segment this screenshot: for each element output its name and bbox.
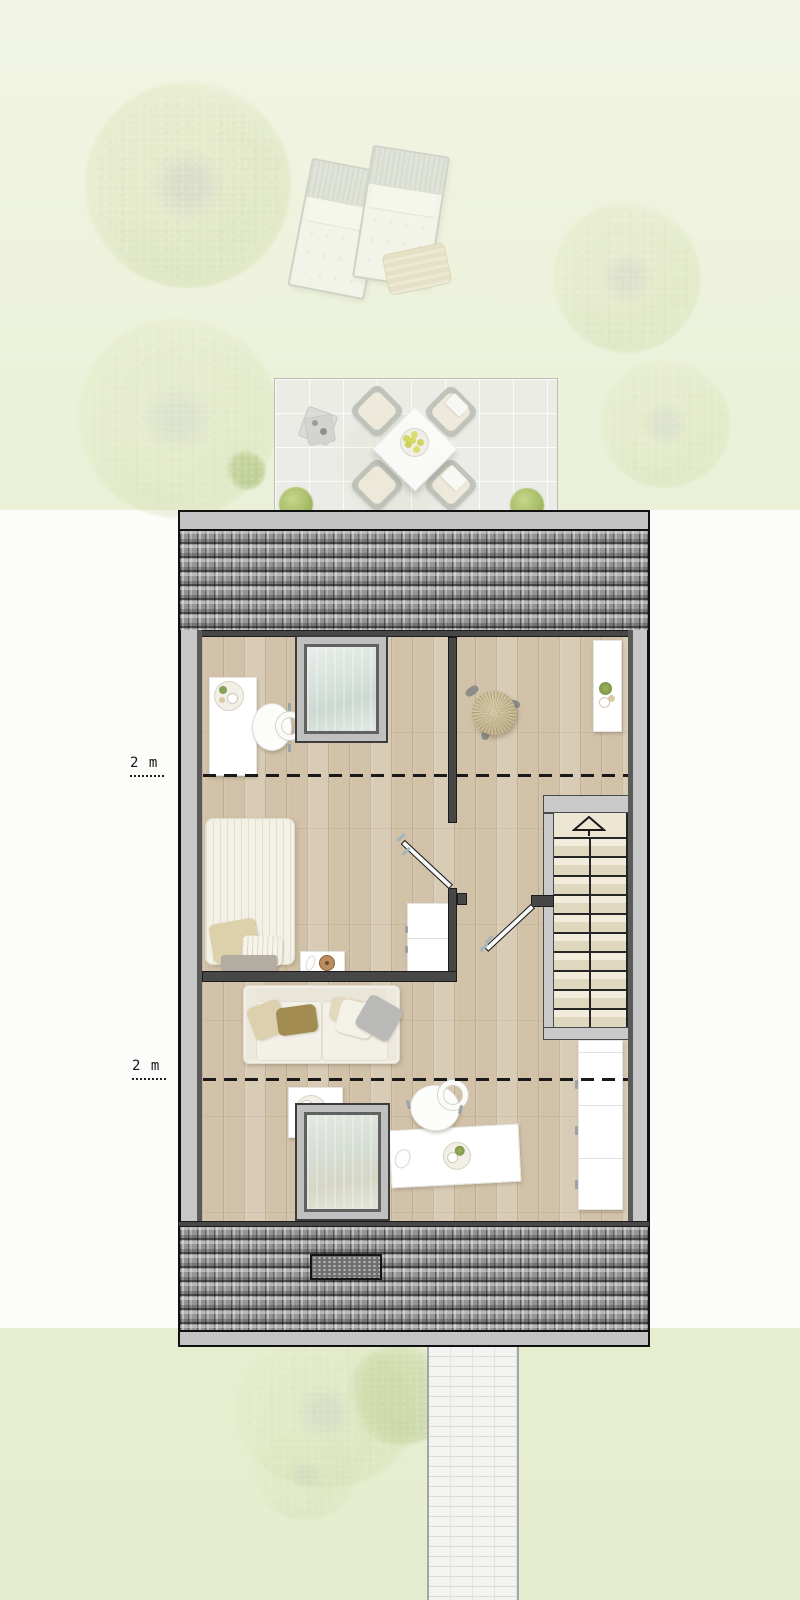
wardrobe [578, 1040, 623, 1210]
wardrobe-handle [575, 1180, 578, 1189]
skylight-glass [304, 1112, 381, 1212]
tree-icon [85, 82, 291, 288]
staircase [554, 813, 628, 1027]
decor-dot [312, 420, 318, 426]
cabinet-handle [405, 946, 408, 953]
sofa-pillow-icon [275, 1003, 319, 1036]
skylight-window [295, 635, 388, 743]
tree-icon [600, 360, 730, 488]
plant-icon [219, 686, 227, 694]
decor-dot [320, 428, 327, 435]
headroom-label: 2 m [130, 755, 158, 771]
eave-bottom [178, 1330, 650, 1347]
cabinet-handle [405, 926, 408, 933]
cup-icon [227, 693, 238, 704]
stair-bottom-wall [543, 1027, 630, 1040]
stair-left-wall [543, 813, 554, 1040]
headroom-label: 2 m [132, 1058, 160, 1074]
wall-right-outline [647, 630, 650, 1227]
wall-bedroom [202, 971, 457, 982]
headroom-label-underline [130, 775, 164, 777]
mouse-icon [392, 1147, 413, 1171]
tree-icon [553, 203, 701, 353]
wall-right [633, 630, 647, 1221]
wall-left [181, 630, 197, 1221]
wardrobe-handle [575, 1126, 578, 1135]
eave-top [178, 510, 650, 531]
wardrobe-divider [578, 1105, 623, 1106]
headroom-dashed-line [203, 774, 628, 777]
garden-path [427, 1347, 519, 1600]
wall-partition-lower [448, 888, 457, 973]
roof-top [178, 531, 650, 630]
plant-icon [599, 682, 612, 695]
desk-bottom [389, 1124, 522, 1189]
fruit-icon [409, 437, 416, 444]
headroom-dashed-line [203, 1078, 628, 1081]
cup-icon [608, 695, 615, 702]
roof-bottom [178, 1227, 650, 1330]
roof-vent-icon [310, 1254, 382, 1280]
bush-icon [226, 450, 266, 490]
wall-stair-stub [531, 895, 554, 907]
wall-flange [457, 893, 467, 905]
wall-partition-upper [448, 637, 457, 823]
stair-top-wall [543, 795, 630, 813]
skylight-glass [304, 644, 379, 734]
wardrobe-handle [575, 1080, 578, 1089]
headroom-label-underline [132, 1078, 166, 1080]
floor-plan-canvas: 2 m 2 m [0, 0, 800, 1600]
chair-arm [288, 744, 291, 752]
wall-top [178, 630, 650, 637]
stairs-up-arrow-icon [572, 815, 606, 837]
skylight-window [295, 1103, 390, 1221]
chair-arm [288, 703, 291, 711]
wardrobe-divider [578, 1052, 623, 1053]
cup-icon [219, 697, 225, 703]
rattan-stool-icon [472, 691, 516, 735]
stair-divider [589, 837, 591, 1027]
wardrobe-divider [578, 1158, 623, 1159]
wall-left-edge [197, 630, 202, 1221]
wood-coaster-icon [319, 955, 335, 971]
tree-icon [255, 1430, 355, 1520]
cabinet-divider [407, 938, 450, 939]
chair-backrest-icon [438, 1080, 468, 1110]
